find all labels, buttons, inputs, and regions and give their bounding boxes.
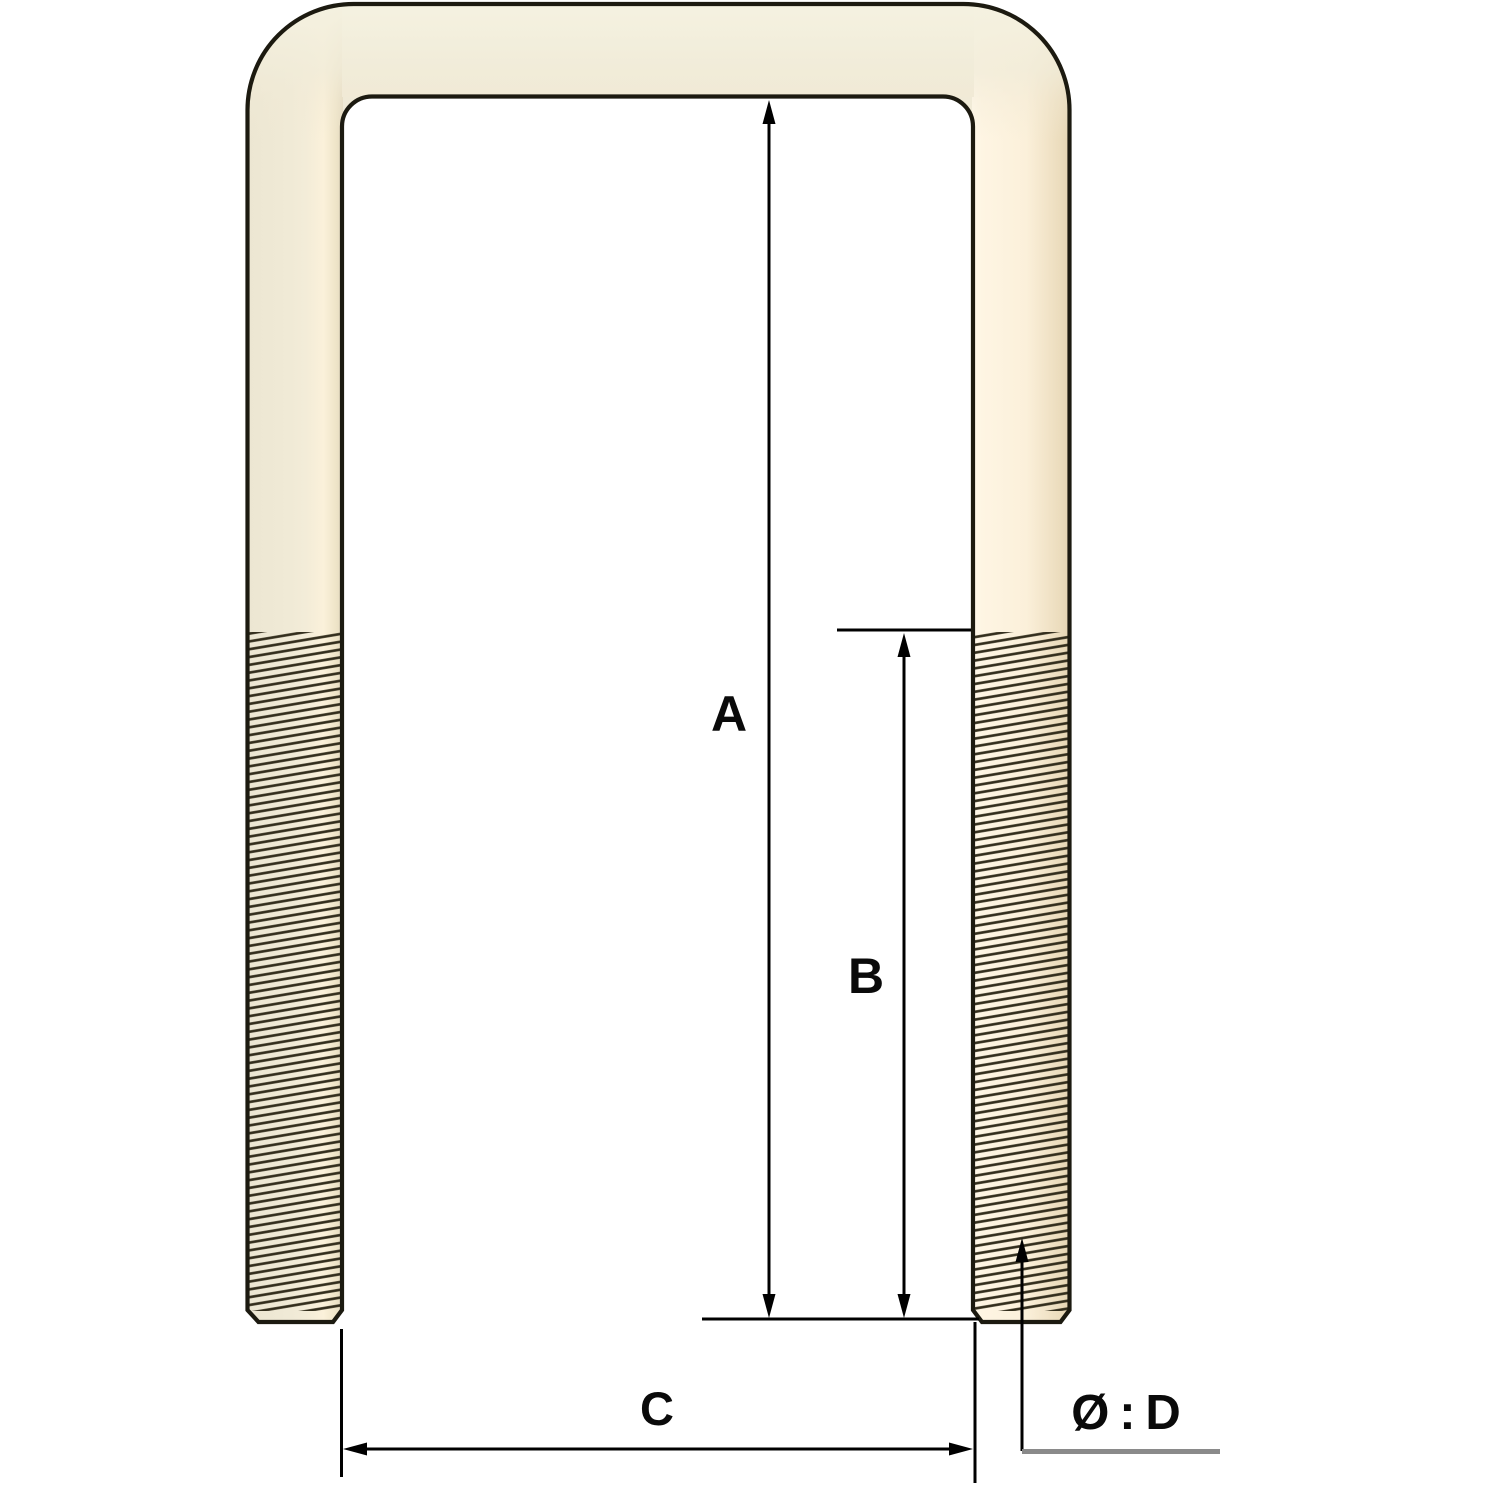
svg-text:B: B (848, 948, 884, 1004)
svg-text:Ø : D: Ø : D (1071, 1386, 1180, 1440)
svg-text:C: C (640, 1382, 674, 1435)
svg-text:A: A (711, 686, 747, 742)
